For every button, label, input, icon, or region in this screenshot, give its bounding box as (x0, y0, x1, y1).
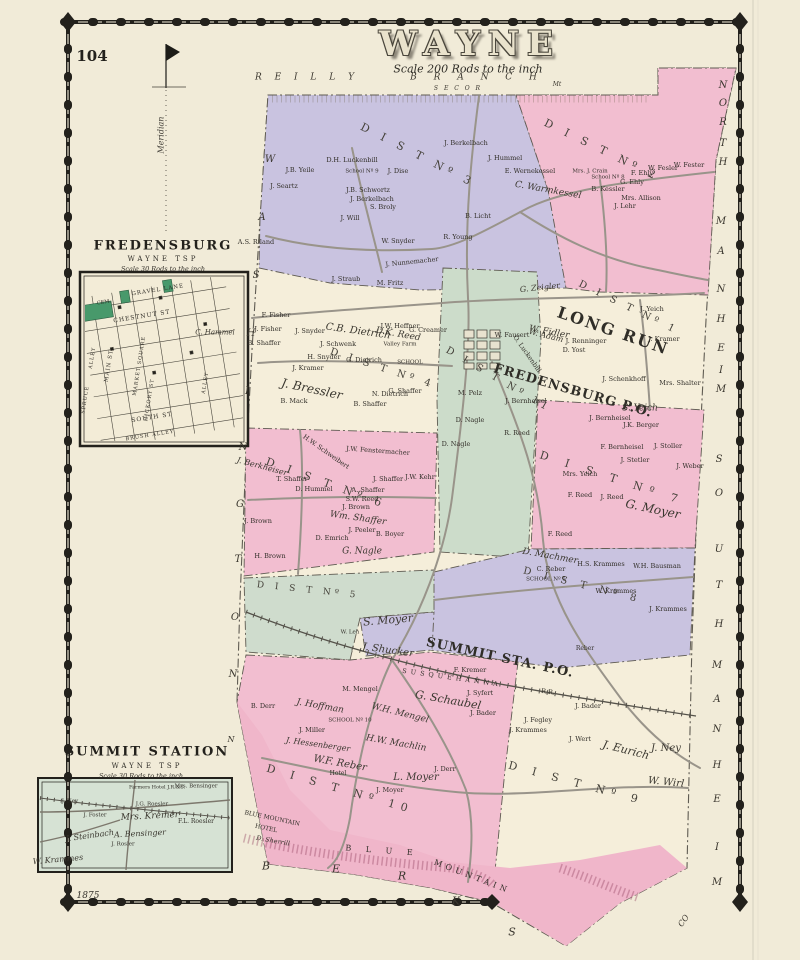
summit-inset-scale: Scale 30 Rods to the inch (99, 772, 183, 780)
edge-letter: B (262, 861, 270, 872)
resident-label: J.K. Berger (623, 422, 659, 429)
edge-letter: I (715, 843, 719, 853)
edge-letter: E (713, 795, 720, 805)
edge-letter: M (712, 878, 722, 888)
resident-label: Valley Farm (384, 342, 417, 348)
edge-letter: I (245, 387, 249, 397)
resident-label: A. Shaffer (352, 487, 385, 494)
map-title: WAYNE (379, 24, 561, 64)
edge-letter: U (715, 545, 723, 555)
resident-label: Hotel (330, 771, 347, 777)
resident-label: F. Kremer (454, 667, 487, 674)
inset-label: J. Foster (83, 813, 106, 819)
edge-letter: A (717, 247, 724, 257)
resident-label: M. Pelz (458, 390, 482, 397)
resident-label: J. Straub (332, 276, 361, 283)
resident-label: J. Kramer (292, 365, 323, 372)
edge-letter: R (719, 118, 727, 128)
resident-label: G. Nagle (342, 548, 382, 557)
resident-label: W.H. Bausman (633, 563, 681, 570)
edge-letter: N (229, 670, 238, 680)
edge-letter: N (239, 443, 248, 453)
edge-letter: A (713, 695, 720, 705)
resident-label: J. Weber (676, 463, 703, 470)
resident-label: J. Bader (575, 703, 601, 710)
resident-label: T. Shaffer (276, 476, 308, 483)
resident-label: J. Dise (388, 168, 409, 175)
edge-letter: N (719, 81, 728, 91)
fredensburg-inset-subtitle: WAYNE TSP (128, 255, 199, 263)
edge-letter: S (253, 271, 260, 281)
resident-label: W. Snyder (381, 238, 414, 245)
resident-label: M. Mengel (342, 686, 378, 693)
resident-label: Mrs. Yeich (563, 471, 598, 478)
edge-letter: G (236, 500, 244, 510)
edge-letter: O (231, 613, 239, 623)
resident-label: J. Reed (601, 494, 624, 501)
resident-label: B. Mack (280, 398, 307, 405)
resident-label: R. Young (443, 234, 472, 241)
resident-label: W. Leh (341, 630, 360, 636)
fredensburg-inset (77, 271, 248, 448)
resident-label: J. Lehr (614, 203, 636, 210)
inset-label: J. Rosler (111, 842, 134, 848)
edge-letter: H (713, 761, 722, 771)
resident-label: S. Broly (370, 204, 396, 211)
summit-inset-subtitle: WAYNE TSP (112, 762, 183, 770)
edge-letter: S E C O R (434, 86, 482, 92)
resident-label: J. Krammes (509, 727, 547, 734)
summit-inset-title: SUMMIT STATION (65, 745, 229, 760)
resident-label: W. Fester (674, 162, 705, 169)
resident-label: J. Kramer (648, 336, 679, 343)
edge-letter: I (719, 366, 723, 376)
resident-label: H. Brown (254, 553, 285, 560)
edge-letter: T (235, 555, 242, 565)
resident-label: J. Krammes (649, 606, 687, 613)
resident-label: J. Snyder (295, 328, 325, 335)
resident-label: G. Ehly (620, 179, 644, 186)
edge-letter: S (716, 455, 723, 465)
resident-label: B. Boyer (376, 531, 404, 538)
resident-label: J. Berkelbach (350, 196, 394, 203)
meridian-label: Meridian (157, 117, 166, 154)
resident-label: M. Fritz (377, 280, 404, 287)
resident-label: J. Yeich (640, 306, 664, 313)
resident-label: D. Nagle (442, 441, 471, 448)
resident-label: J. Hummel (488, 155, 522, 162)
edge-letter: M (712, 661, 722, 671)
resident-label: J. Will (340, 215, 359, 222)
resident-label: G. Dietrich (346, 357, 382, 364)
inset-label: J.G. Roesler (136, 802, 168, 808)
edge-letter: T (716, 581, 723, 591)
resident-label: J. Bader (470, 710, 496, 717)
edge-letter: H (717, 315, 726, 325)
resident-label: J. Ney (651, 744, 681, 754)
resident-label: S.W. Reed (346, 496, 379, 503)
resident-label: B. Shaffer (354, 401, 387, 408)
edge-letter: E (332, 864, 340, 875)
edge-letter: N (713, 725, 722, 735)
inset-label: C. Hammel (195, 330, 235, 337)
resident-label: J. Stetler (621, 457, 650, 464)
page-number: 104 (76, 47, 107, 65)
resident-label: C. Reber (537, 566, 566, 573)
resident-label: J. Fisher (254, 326, 281, 333)
resident-label: B. Kessler (591, 186, 624, 193)
resident-label: W. Krammes (595, 588, 636, 595)
resident-label: J. Syfert (467, 690, 493, 697)
resident-label: S. Yeich (622, 405, 658, 414)
edge-letter: O (719, 99, 727, 109)
resident-label: Mrs. Shalter (659, 380, 700, 387)
resident-label: F. Fisher (262, 312, 291, 319)
resident-label: B. Shaffer (248, 340, 281, 347)
resident-label: J. Brown (342, 504, 370, 511)
resident-label: J.B. Yeile (286, 167, 315, 174)
resident-label: F. Reed (568, 492, 592, 499)
resident-label: J. Bernheisel (505, 398, 547, 405)
resident-label: J. Renninger (566, 338, 607, 345)
edge-letter: O (715, 489, 723, 499)
edge-letter: N (717, 285, 726, 295)
resident-label: J. Wert (569, 736, 591, 743)
resident-label: J. Moyer (376, 787, 403, 794)
resident-label: F. Bernheisel (601, 444, 644, 451)
resident-label: SCHOOL (397, 360, 422, 366)
resident-label: SCHOOL Nº 10 (328, 718, 371, 724)
fredensburg-inset-scale: Scale 30 Rods to the inch (121, 265, 205, 273)
edge-letter: H (715, 620, 724, 630)
resident-label: J. Stoller (654, 443, 682, 450)
edge-letter: K (452, 896, 460, 907)
edge-letter: B R A N C H (410, 74, 544, 83)
resident-label: J. Schwenk (320, 341, 356, 348)
atlas-map-sheet: 104 WAYNE Scale 200 Rods to the inch Mer… (0, 0, 800, 960)
resident-label: J. Schenkhoff (602, 376, 645, 383)
resident-label: D. Emrich (315, 535, 348, 542)
edge-letter: H (719, 158, 728, 168)
resident-label: D.H. Luckenbill (326, 157, 377, 164)
edge-letter: T (720, 139, 727, 149)
resident-label: H. Snyder (307, 354, 340, 361)
edge-letter: M (716, 385, 726, 395)
edge-letter: R (398, 871, 406, 882)
edge-letter: E (717, 344, 724, 354)
resident-label: J. Peeler (348, 527, 375, 534)
resident-label: J. Derr (434, 766, 456, 773)
resident-label: F. Reed (548, 531, 572, 538)
resident-label: School Nº 9 (345, 169, 378, 175)
fredensburg-inset-title: FREDENSBURG (94, 239, 233, 254)
resident-label: J. Miller (299, 727, 325, 734)
edge-letter: W (265, 155, 275, 165)
inset-label: J. Ney (62, 799, 78, 805)
edge-letter: Mt (553, 82, 562, 88)
resident-label: D. Yost (563, 347, 586, 354)
resident-label: R. Reed (504, 430, 530, 437)
resident-label: Mrs. Allison (621, 195, 661, 202)
resident-label: B. Licht (465, 213, 491, 220)
resident-label: L. Moyer (393, 773, 439, 783)
edge-letter: H (247, 329, 256, 339)
edge-letter: S (508, 927, 516, 938)
resident-label: D. Nagle (456, 417, 485, 424)
map-year: 1875 (77, 891, 100, 901)
resident-label: J.B. Schwortz (346, 187, 390, 194)
resident-label: H.S. Krammes (577, 561, 624, 568)
inset-label: Mrs. Bensinger (175, 784, 218, 790)
resident-label: B. Derr (251, 703, 275, 710)
edge-letter: R E I L L Y (255, 74, 359, 83)
resident-label: A.S. Riland (238, 239, 274, 246)
resident-label: Reber (576, 646, 594, 652)
edge-letter: M (716, 217, 726, 227)
resident-label: SCHOOL Nº 5 (526, 577, 566, 583)
resident-label: J.W. Kehr (405, 474, 435, 481)
inset-label: N (228, 736, 235, 744)
inset-label: F.L. Roesler (178, 819, 214, 825)
resident-label: G. Creamer (409, 327, 447, 334)
resident-label: E. Wernekessel (505, 168, 555, 175)
district-11 (437, 268, 541, 558)
resident-label: J. Seartz (270, 183, 298, 190)
resident-label: J. Fegley (524, 717, 552, 724)
edge-letter: A (258, 213, 265, 223)
place-label: R.R. (541, 688, 556, 696)
resident-label: J. Shaffer (373, 476, 403, 483)
resident-label: J. Berkelbach (444, 140, 488, 147)
resident-label: D. Hummel (295, 486, 332, 493)
resident-label: J. Brown (244, 518, 272, 525)
resident-label: G. Shaffer (388, 388, 421, 395)
